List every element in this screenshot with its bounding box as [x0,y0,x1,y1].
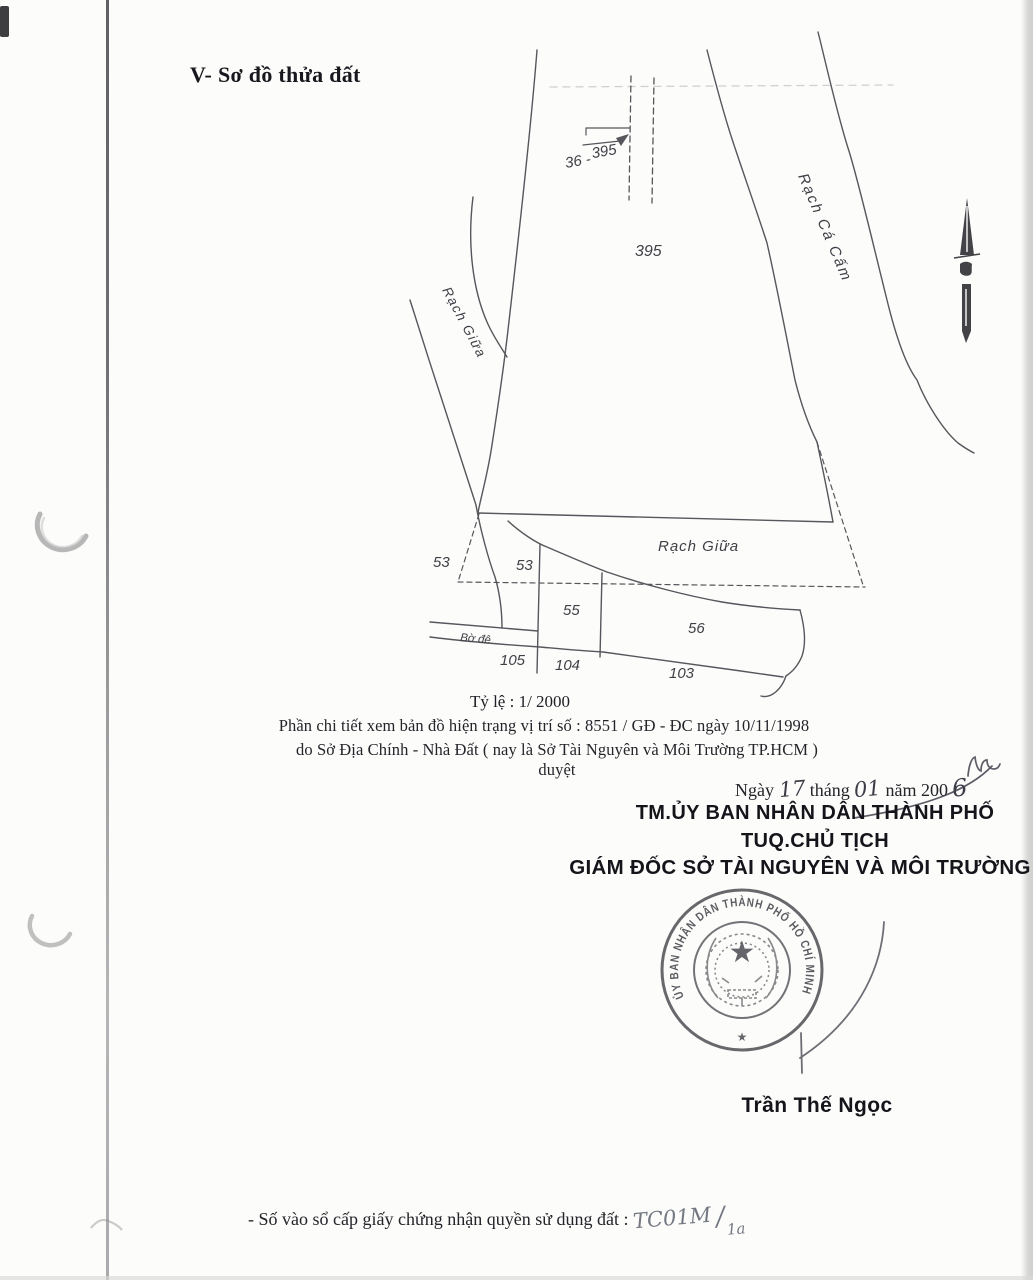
dimension-bracket [586,128,630,135]
label-parcel-55: 55 [563,602,580,619]
registry-number-handwritten: TC01M [632,1205,712,1233]
registry-separator-handwritten: / [715,1204,726,1231]
date-day-handwritten: 17 [778,778,806,801]
canal-centerline-left [629,76,631,200]
label-lot-105: 105 [500,652,526,669]
dike-north-line [430,622,538,631]
parcel-395-east-boundary-lower [817,442,833,522]
stamp-center-star: ★ [729,936,756,969]
registry-suffix-handwritten: 1a [726,1221,746,1238]
punch-hole-top [20,496,96,572]
divider-53-55 [537,544,540,673]
label-parcel-395: 395 [635,243,662,260]
stamp-bottom-star: ★ [737,1030,748,1044]
label-lot-104: 104 [555,657,580,674]
label-dike: Bờ đê [460,632,492,647]
note-line-1: Phần chi tiết xem bản đồ hiện trạng vị t… [264,716,824,736]
label-parcel-53: 53 [516,557,533,574]
scan-bottom-edge-shadow [0,1276,1033,1280]
org-line-3: GIÁM ĐỐC SỞ TÀI NGUYÊN VÀ MÔI TRƯỜNG [568,856,1032,880]
scan-smudge [88,1212,134,1238]
north-arrow-ornament [960,262,972,276]
parcel-55-56-north-boundary [508,521,800,610]
parcel-395-south-boundary [478,513,833,522]
org-line-2: TUQ.CHỦ TỊCH [585,830,1033,853]
registry-label: - Số vào sổ cấp giấy chứng nhận quyền sử… [248,1209,633,1229]
label-sheet-ref: 36 -395 [563,141,620,172]
page-fold-line [106,0,109,1280]
water-strip-dashed-east [817,442,863,585]
section-title: V- Sơ đồ thửa đất [190,62,361,88]
north-arrow [954,198,980,343]
signature-stroke [770,915,900,1080]
divider-55-56 [600,573,602,657]
label-lot-103: 103 [669,665,695,682]
note-line-2: do Sở Địa Chính - Nhà Đất ( nay là Sở Tà… [277,740,837,780]
map-scale: Tỷ lệ : 1/ 2000 [440,692,600,712]
north-arrow-fork [962,331,971,343]
scanned-land-certificate-page: V- Sơ đồ thửa đất [0,0,1033,1280]
parcel-56-east-hook [761,676,786,696]
scan-artifact-dotted-line [550,85,893,87]
label-stream-rach-giua-mid: Rạch Giữa [658,538,739,555]
org-line-1: TM.ỦY BAN NHÂN DÂN THÀNH PHỐ [585,802,1033,825]
punch-hole-bottom [16,902,80,962]
date-word-day: Ngày [735,780,774,800]
canal-centerline-right [652,78,654,203]
label-sheet-ref-b: 395 [590,141,618,162]
parcel-395-east-boundary [707,50,817,442]
label-canal-rach-ca-cam: Rạch Cá Cấm [794,171,855,285]
registry-line: - Số vào sổ cấp giấy chứng nhận quyền sử… [248,1204,748,1230]
parcel-56-east-curl [786,610,804,676]
cadastral-sketch: 395 36 -395 Rạch Cá Cấm Rạch Giữa Rạch G… [395,28,1033,710]
parcel-395-west-boundary [478,50,537,513]
signer-name: Trần Thế Ngọc [687,1094,947,1118]
label-parcel-53-outer: 53 [433,554,450,571]
scan-corner-mark [0,6,9,37]
water-strip-dashed-south [458,582,865,587]
water-strip-dashed-west [458,514,479,582]
label-stream-rach-giua-left: Rạch Giữa [439,284,489,360]
label-parcel-56: 56 [688,620,705,637]
dimension-arrowhead [616,134,629,146]
label-sheet-ref-a: 36 - [564,151,592,172]
